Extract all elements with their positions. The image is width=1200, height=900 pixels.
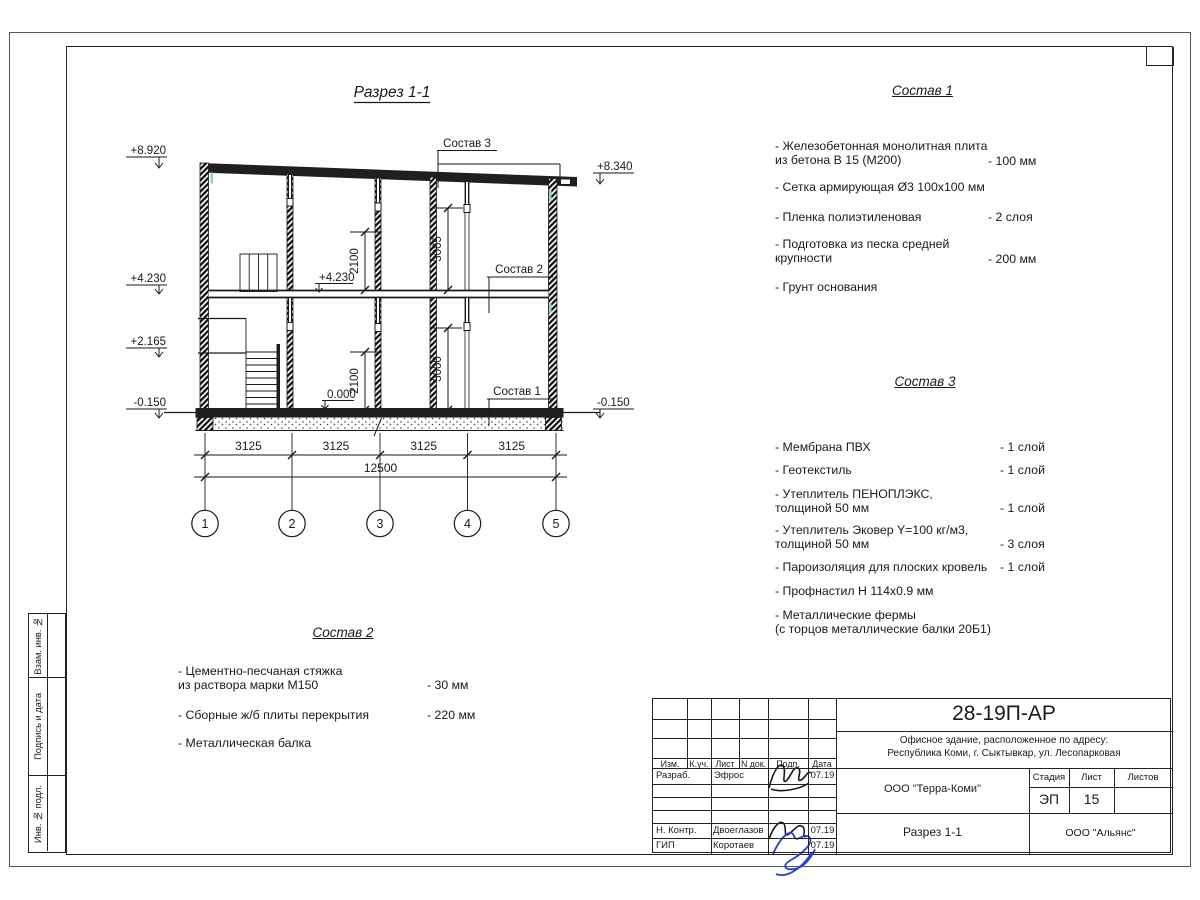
composition-list-1: Состав 1 - Железобетонная монолитная пли… (770, 84, 1075, 299)
bay-dim: 3125 (235, 439, 262, 453)
list-title: Состав 3 (770, 375, 1080, 389)
list-item: - Железобетонная монолитная плита из бет… (775, 139, 987, 167)
role-nkontr: Н. Контр. (656, 825, 696, 836)
leader-label: Состав 1 (493, 386, 541, 398)
dim-text: 2100 (349, 248, 361, 274)
list-item: - Сетка армирующая Ø3 100х100 мм (775, 180, 985, 194)
date-nkontr: 07.19 (809, 825, 836, 836)
vertical-dimensions: 2100 3065 2100 3000 (349, 204, 463, 414)
list-item: - Металлические фермы (с торцов металлич… (775, 608, 991, 636)
dimension-chain: 3125 3125 3125 3125 12500 (194, 433, 567, 510)
list-item: - Пленка полиэтиленовая (775, 210, 921, 224)
list-item-value: - 2 слоя (988, 210, 1033, 224)
sheets-label: Листов (1114, 772, 1172, 783)
view-name: Разрез 1-1 (836, 825, 1029, 839)
dim-text: 3065 (432, 236, 444, 262)
list-item: - Геотекстиль (775, 463, 852, 477)
elevation-text: +4.230 (131, 273, 167, 285)
designer-org: ООО "Терра-Коми" (836, 783, 1029, 795)
col-data: Дата (808, 759, 836, 769)
drawing-sheet: Взам. инв. № Подпись и дата Инв. № подл. (0, 0, 1200, 900)
date-gip: 07.19 (809, 840, 836, 851)
bay-dim: 3125 (410, 439, 437, 453)
list-item-value: - 1 слой (1000, 560, 1045, 574)
composition-list-3: Состав 3 - Мембрана ПВХ - 1 слой - Геоте… (770, 375, 1080, 640)
axis-number: 3 (377, 517, 384, 531)
staircase (198, 254, 280, 411)
stage-label: Стадия (1029, 772, 1069, 783)
list-item: - Грунт основания (775, 280, 877, 294)
col-kuch: К.уч. (687, 759, 711, 769)
list-item-value: - 30 мм (427, 678, 469, 692)
bay-dim: 3125 (323, 439, 350, 453)
axis-number: 1 (202, 517, 209, 531)
role-razrab: Разраб. (656, 770, 690, 781)
elevation-text: -0.150 (597, 397, 630, 409)
list-item-value: - 1 слой (1000, 440, 1045, 454)
col-podp: Подп. (768, 759, 808, 769)
list-item: - Мембрана ПВХ (775, 440, 871, 454)
stage-value: ЭП (1029, 791, 1069, 807)
leader-label: Состав 2 (495, 264, 543, 276)
title-block: 28-19П-АР Офисное здание, расположенное … (652, 698, 1171, 853)
list-item-value: - 220 мм (427, 708, 475, 722)
list-item-value: - 100 мм (988, 154, 1036, 168)
list-title: Состав 1 (770, 84, 1075, 98)
axis-number: 2 (289, 517, 296, 531)
name-nkontr: Двоеглазов (713, 825, 764, 836)
elevation-text: +2.165 (131, 336, 167, 348)
document-code: 28-19П-АР (836, 702, 1172, 726)
name-gip: Коротаев (713, 840, 754, 851)
role-gip: ГИП (656, 840, 675, 851)
elevation-text: +8.340 (597, 161, 633, 173)
col-ndok: N док. (739, 759, 768, 769)
dim-text: 2100 (349, 368, 361, 394)
list-title: Состав 2 (178, 626, 508, 640)
date-razrab: 07.19 (809, 770, 836, 781)
list-item: - Утеплитель Эковер Y=100 кг/м3, толщино… (775, 523, 968, 551)
list-item: - Подготовка из песка средней крупности (775, 237, 949, 265)
list-item: - Металлическая балка (178, 736, 311, 750)
col-list: Лист (711, 759, 739, 769)
sheet-label: Лист (1069, 772, 1114, 783)
elevation-text: +8.920 (131, 145, 167, 157)
list-item: - Профнастил Н 114х0.9 мм (775, 584, 933, 598)
list-item: - Сборные ж/б плиты перекрытия (178, 708, 369, 722)
col-izm: Изм. (653, 759, 687, 769)
list-item-value: - 1 слой (1000, 501, 1045, 515)
section-title: Разрез 1-1 (354, 84, 431, 101)
list-item-value: - 3 слоя (1000, 537, 1045, 551)
leader-label: Состав 3 (443, 138, 491, 150)
list-item: - Утеплитель ПЕНОПЛЭКС, толщиной 50 мм (775, 487, 933, 515)
list-item: - Пароизоляция для плоских кровель (775, 560, 987, 574)
client-org: ООО "Альянс" (1029, 827, 1172, 839)
total-dim: 12500 (364, 461, 398, 475)
object-address: Офисное здание, расположенное по адресу:… (836, 735, 1172, 760)
axis-number: 5 (553, 517, 560, 531)
sheet-number: 15 (1069, 791, 1114, 807)
roof-section (200, 163, 577, 187)
name-razrab: Эфрос (714, 770, 744, 781)
axis-bubbles: 1 2 3 4 5 (192, 510, 569, 536)
composition-list-2: Состав 2 - Цементно-песчаная стяжка из р… (178, 626, 508, 761)
dim-text: 3000 (432, 356, 444, 382)
elevation-text: -0.150 (133, 397, 166, 409)
list-item: - Цементно-песчаная стяжка из раствора м… (178, 664, 343, 692)
ground-slab (164, 408, 600, 436)
list-item-value: - 1 слой (1000, 463, 1045, 477)
list-item-value: - 200 мм (988, 252, 1036, 266)
axis-number: 4 (464, 517, 471, 531)
bay-dim: 3125 (498, 439, 525, 453)
